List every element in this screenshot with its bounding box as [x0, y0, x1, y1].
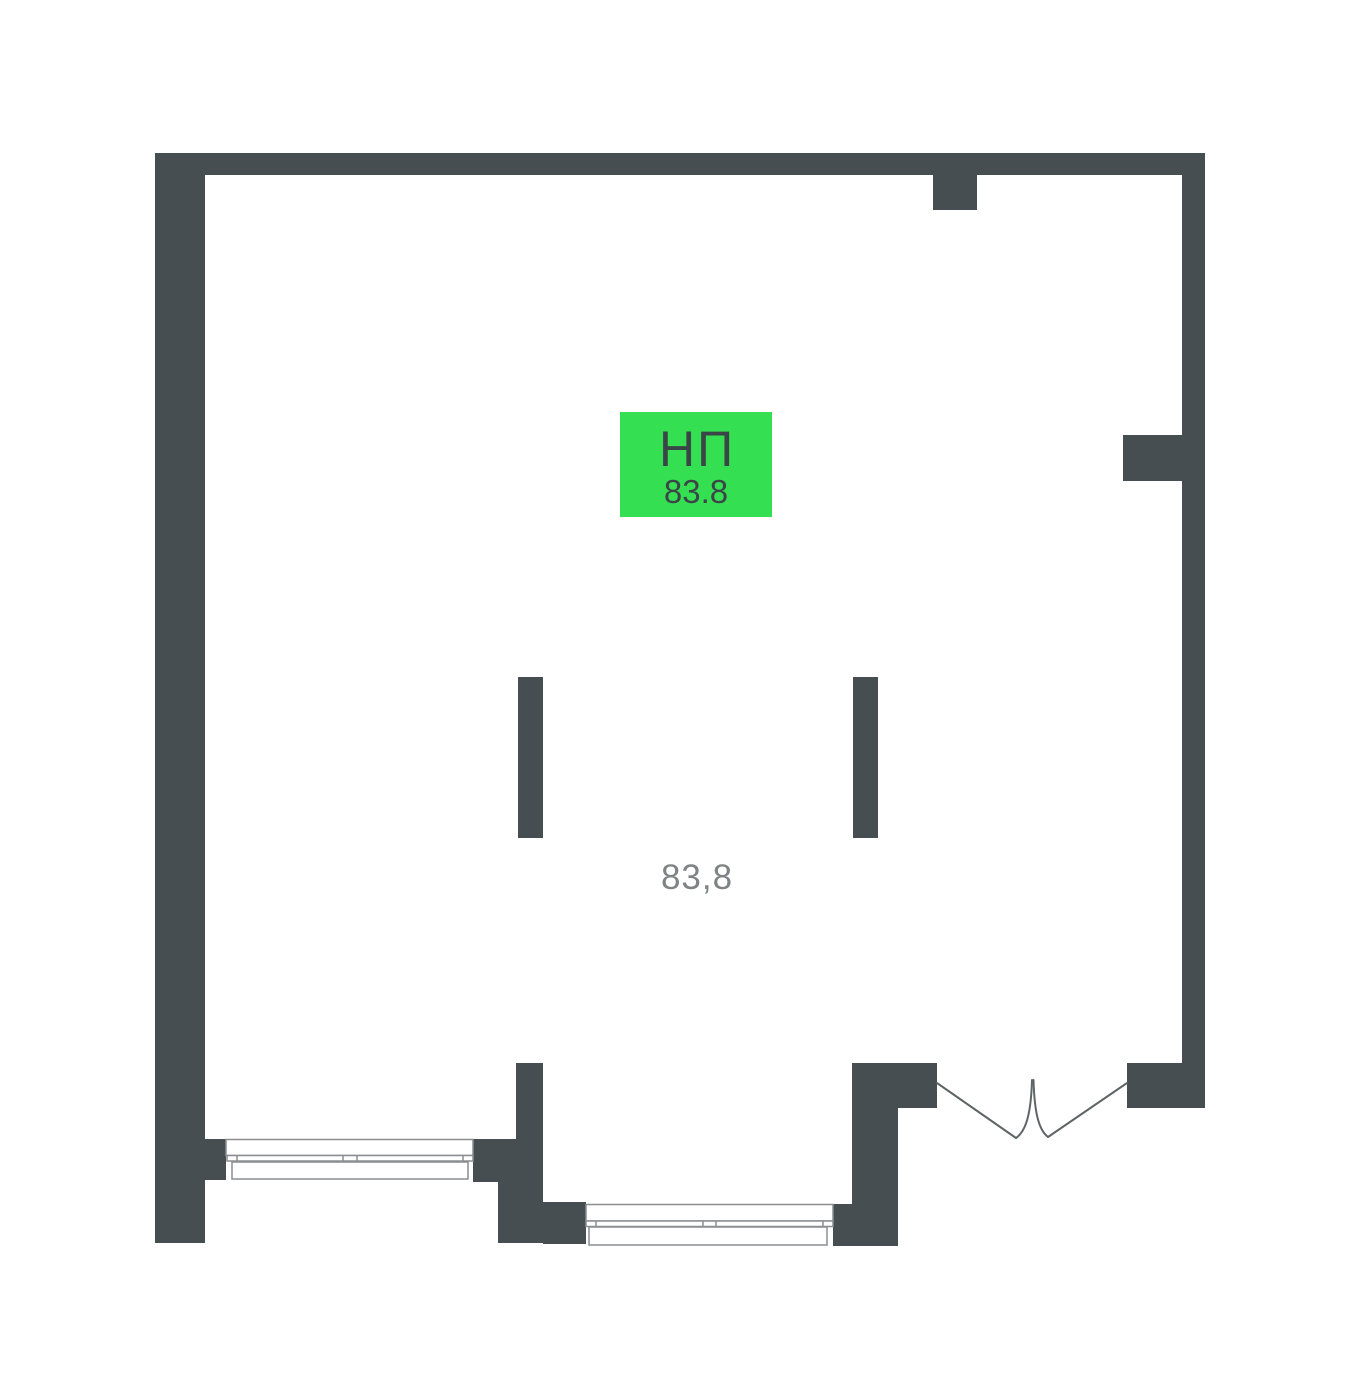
window-bottom-glass-band	[586, 1221, 833, 1227]
window-left	[226, 1140, 473, 1180]
window-bottom-sill	[589, 1227, 827, 1245]
door-leaf-right	[1048, 1083, 1127, 1137]
window-bottom-jamb-left	[543, 1202, 586, 1244]
window-left-glass-band	[227, 1156, 473, 1162]
door-leaf-left	[937, 1083, 1016, 1138]
wall-connector-left-foot	[498, 1180, 543, 1243]
window-bottom-jamb-right	[833, 1204, 898, 1246]
door-arc-right	[1034, 1080, 1049, 1137]
room-area-label: 83,8	[661, 858, 733, 897]
wall-right	[1182, 153, 1205, 1108]
floor-plan-canvas: НП 83.8 83,8	[0, 0, 1362, 1400]
floor-plan: НП 83.8 83,8	[0, 0, 1362, 1400]
unit-type-label: НП	[659, 421, 735, 477]
pier-interior-left	[518, 677, 543, 838]
window-left-jamb-left	[203, 1139, 226, 1180]
door-arc-left	[1016, 1080, 1032, 1138]
window-left-sill	[232, 1162, 468, 1179]
door-jamb-left	[852, 1063, 937, 1108]
unit-badge-area: 83.8	[664, 473, 728, 510]
window-left-frame	[226, 1140, 473, 1156]
walls	[155, 153, 1205, 1246]
pier-top	[933, 175, 977, 210]
wall-left	[155, 153, 205, 1243]
door-jamb-right	[1127, 1063, 1205, 1108]
unit-badge[interactable]: НП 83.8	[620, 412, 772, 517]
wall-top	[155, 153, 1205, 175]
window-bottom-frame	[586, 1205, 833, 1222]
pier-right	[1123, 435, 1183, 481]
pier-interior-right	[853, 677, 878, 838]
entrance-door-swing	[937, 1080, 1127, 1138]
window-bottom	[586, 1205, 833, 1246]
